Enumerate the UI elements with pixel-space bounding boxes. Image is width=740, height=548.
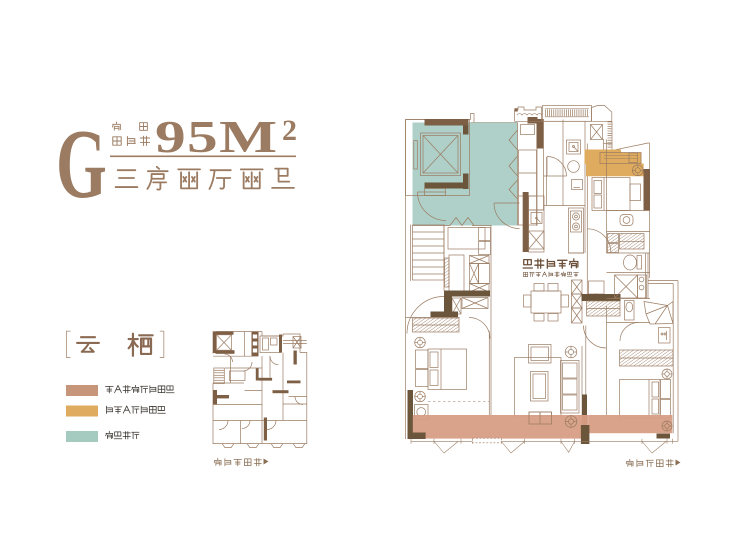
svg-text:G: G	[56, 110, 107, 220]
svg-text:95M: 95M	[155, 111, 278, 162]
svg-text:2: 2	[282, 114, 297, 147]
